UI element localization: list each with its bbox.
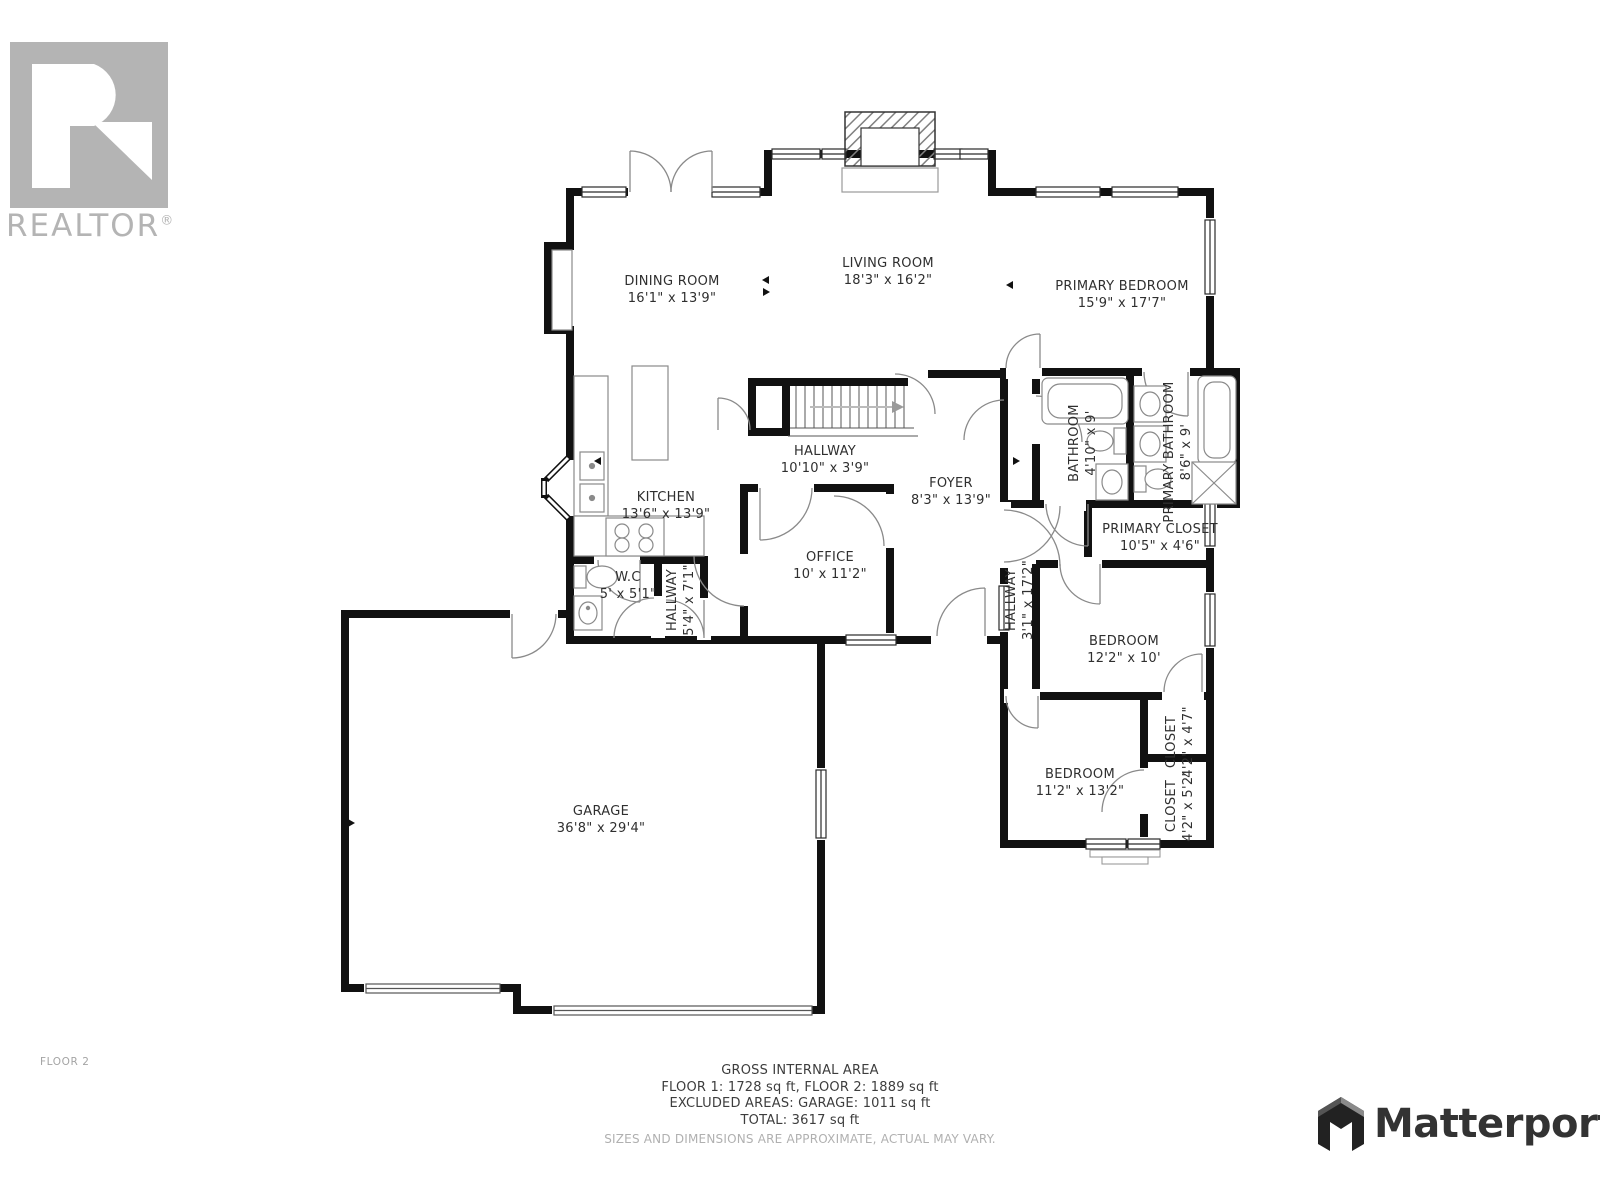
room-label-hallway-wing: HALLWAY3'1" x 17'2" [1003,560,1037,640]
realtor-logo [10,42,170,212]
room-label-closet-47: CLOSET4'2" x 4'7" [1163,706,1197,777]
room-label-bedroom-11: BEDROOM11'2" x 13'2" [1036,766,1125,800]
marker-icon [1013,457,1020,465]
porch-steps-icon [1090,850,1160,864]
room-label-office: OFFICE10' x 11'2" [793,549,867,583]
room-label-bathroom: BATHROOM4'10" x 9' [1066,404,1100,482]
room-label-living-room: LIVING ROOM18'3" x 16'2" [842,255,934,289]
stairs-direction-arrow-icon [892,401,904,413]
floorplan-page: { "branding": { "realtor": { "wordmark":… [0,0,1600,1200]
toilet-icon [1134,466,1146,492]
room-label-wc: W.C5' x 5'1" [600,569,657,603]
garage-doors [366,984,812,1015]
fireplace-icon [842,112,938,192]
stairs [788,386,918,436]
bay-window-icon [544,456,570,520]
room-label-primary-closet: PRIMARY CLOSET10'5" x 4'6" [1102,521,1218,555]
realtor-wordmark: REALTOR® [6,208,175,244]
room-label-bedroom-12: BEDROOM12'2" x 10' [1087,633,1161,667]
dining-nook-icon [552,250,572,330]
floor-plan [0,0,1600,1200]
room-label-hallway-main: HALLWAY10'10" x 3'9" [781,443,870,477]
room-label-primary-bathroom: PRIMARY BATHROOM8'6" x 9' [1161,381,1195,522]
area-summary-title: GROSS INTERNAL AREA [0,1063,1600,1080]
room-label-dining-room: DINING ROOM16'1" x 13'9" [624,273,719,307]
stove-icon [606,518,664,556]
kitchen-island-icon [632,366,668,460]
matterport-wordmark: Matterport [1374,1102,1600,1146]
marker-icon [348,819,355,827]
toilet-icon [574,566,586,588]
room-label-closet-52: CLOSET4'2" x 5'2" [1163,770,1197,841]
marker-icon [762,276,769,284]
room-label-hallway-small: HALLWAY5'4" x 7'1" [664,564,698,635]
toilet-icon [1114,428,1126,454]
room-label-primary-bedroom: PRIMARY BEDROOM15'9" x 17'7" [1055,278,1188,312]
room-label-kitchen: KITCHEN13'6" x 13'9" [622,489,711,523]
marker-icon [763,288,770,296]
matterport-logo-icon [1314,1090,1366,1156]
marker-icon [1006,281,1013,289]
room-label-garage: GARAGE36'8" x 29'4" [557,803,646,837]
registered-mark-icon: ® [160,214,175,229]
room-label-foyer: FOYER8'3" x 13'9" [911,475,991,509]
